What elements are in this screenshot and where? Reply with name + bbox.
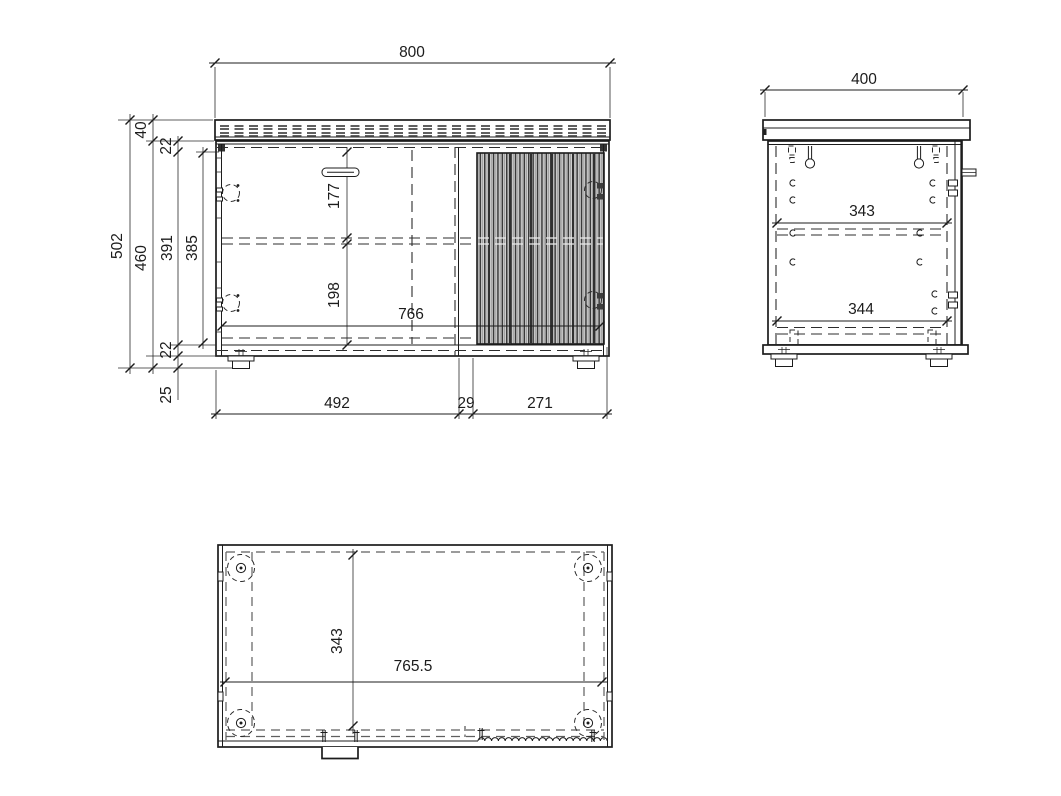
front-top-panel xyxy=(215,120,610,140)
front-dim-177-label: 177 xyxy=(326,183,343,209)
front-dim-25-label: 25 xyxy=(158,386,175,403)
front-dim-22-top-label: 22 xyxy=(158,137,175,154)
drawing-page: 177 198 766 800 xyxy=(0,0,1061,796)
front-dim-492-label: 492 xyxy=(324,395,350,412)
front-fluted-door xyxy=(477,153,604,344)
front-dim-40-label: 40 xyxy=(133,121,150,139)
front-dim-385-label: 385 xyxy=(184,235,201,261)
side-handle xyxy=(962,169,976,176)
front-dims-bottom: 492 29 271 xyxy=(211,347,612,419)
front-dim-29-label: 29 xyxy=(457,395,474,412)
side-top-panel xyxy=(763,120,970,140)
front-view: 177 198 766 800 xyxy=(109,44,616,419)
technical-drawing-canvas: 177 198 766 800 xyxy=(0,0,1061,796)
side-dim-400-label: 400 xyxy=(851,71,877,88)
front-dim-198-label: 198 xyxy=(326,282,343,308)
front-dim-22-bottom-label: 22 xyxy=(158,341,175,358)
front-dim-502-label: 502 xyxy=(109,233,126,259)
bottom-dim-765-label: 765.5 xyxy=(394,658,433,675)
front-dim-460-label: 460 xyxy=(133,245,150,271)
bottom-tab xyxy=(322,747,358,759)
bottom-dim-343-label: 343 xyxy=(329,628,346,654)
side-dim-depth: 400 xyxy=(760,71,968,117)
front-dim-800-label: 800 xyxy=(399,44,425,61)
bottom-view: 343 765.5 xyxy=(218,545,612,759)
side-dim-344-label: 344 xyxy=(848,301,874,318)
side-carcass xyxy=(768,141,962,350)
side-view: 400 xyxy=(760,71,976,367)
front-dim-271-label: 271 xyxy=(527,395,553,412)
front-dim-766-label: 766 xyxy=(398,306,424,323)
front-dim-width: 800 xyxy=(209,44,616,118)
front-dim-391-label: 391 xyxy=(159,235,176,261)
door-handle xyxy=(322,168,359,177)
side-dim-343-label: 343 xyxy=(849,203,875,220)
front-dims-left: 502 460 40 22 391 385 22 25 xyxy=(109,114,232,404)
bottom-outline xyxy=(218,545,612,747)
